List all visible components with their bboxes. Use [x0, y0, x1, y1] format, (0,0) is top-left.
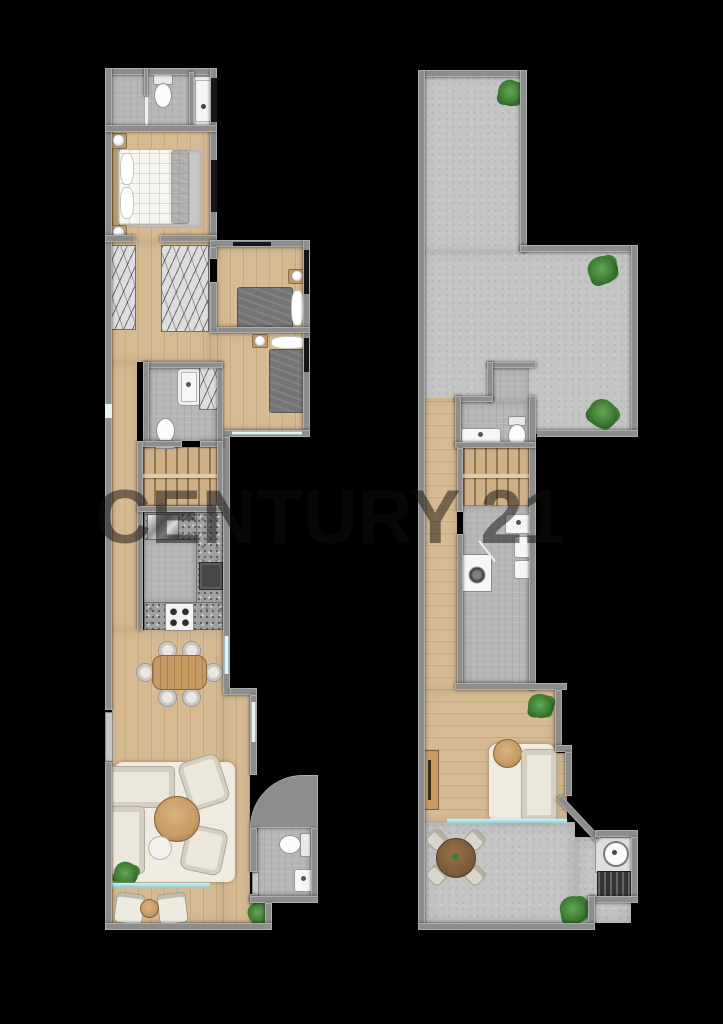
wall: [595, 830, 638, 837]
table-plant: [452, 853, 459, 860]
sink-drain: [612, 850, 617, 855]
wall: [555, 690, 562, 750]
wall: [588, 896, 638, 903]
wall: [418, 70, 527, 77]
wall: [418, 923, 595, 930]
wall: [555, 745, 572, 752]
wall: [455, 396, 461, 448]
bath-vestibule-floor: [493, 368, 529, 402]
side-table: [493, 739, 522, 768]
wall: [455, 442, 536, 448]
sofa: [521, 749, 557, 821]
wall: [631, 837, 638, 903]
wall: [455, 683, 567, 690]
floor-plan-image: CENTURY 21: [0, 0, 723, 1024]
century21-watermark: CENTURY 21: [96, 474, 565, 561]
wall: [487, 362, 536, 368]
wall: [631, 245, 638, 437]
wall: [520, 245, 638, 252]
wall: [537, 430, 638, 437]
wall: [520, 70, 527, 252]
wall: [565, 752, 572, 796]
terrace-glass-partition: [447, 819, 567, 823]
